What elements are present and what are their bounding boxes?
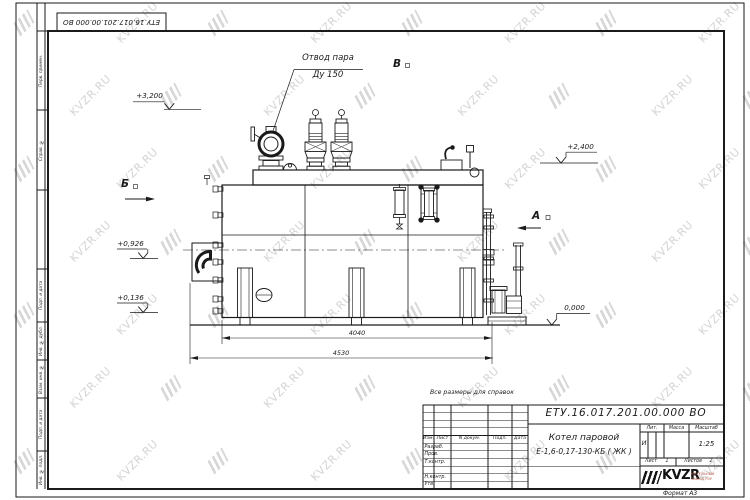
sheet-ref-mark-b xyxy=(134,185,138,189)
drawing-canvas xyxy=(0,0,750,500)
safety-valve-2 xyxy=(331,110,352,171)
steam-outlet-valve xyxy=(251,127,283,171)
left-nozzles xyxy=(205,176,224,315)
col-header-dokum: N докум. xyxy=(451,437,488,442)
scale-header: Масштаб xyxy=(689,426,724,431)
elevation-0926: +0,926 xyxy=(114,240,147,248)
row-label-prov: Пров. xyxy=(425,452,439,457)
side-label-vzam-inv: Взам. инв. № xyxy=(37,362,46,396)
view-direction-arrows xyxy=(125,64,550,231)
steam-outlet-callout-line1: Отвод пара xyxy=(292,54,364,63)
row-label-razrab: Разраб. xyxy=(425,445,444,450)
elevation-0136: +0,136 xyxy=(114,294,147,302)
elevation-2400: +2,400 xyxy=(564,143,597,151)
doc-number: ЕТУ.16.017.201.00.000 ВО xyxy=(528,408,724,419)
sheet-ref-mark-v xyxy=(406,64,410,68)
elevation-3200: +3,200 xyxy=(133,92,166,100)
drawing-sheet: KVZR.RUKVZR.RUKVZR.RUKVZR.RUKVZR.RUKVZR.… xyxy=(0,0,750,500)
water-level-gauges xyxy=(394,184,440,229)
kvzr-logo-sub1: КОТЕЛЬНЫЙ xyxy=(691,473,714,477)
col-header-data: Дата xyxy=(512,437,528,442)
side-label-podp-data-1: Подп. и дата xyxy=(37,271,46,320)
sheets-value: 2 xyxy=(706,459,716,464)
boiler-top-band xyxy=(253,170,483,185)
row-label-nkontr: Н.контр. xyxy=(425,475,446,480)
boiler-supports xyxy=(238,268,476,325)
sheet-label: Лист xyxy=(642,459,660,464)
lit-value: И xyxy=(640,440,648,447)
sheet-ref-mark-a xyxy=(546,216,550,220)
safety-valve-1 xyxy=(305,110,326,171)
boiler-elevation-view xyxy=(183,110,560,326)
view-marker-v: В xyxy=(393,59,401,70)
top-stamp-text: ЕТУ.16.017.201.00.000 ВО xyxy=(57,13,166,31)
side-label-inv-podl: Инв. № подл. xyxy=(37,453,46,487)
sheet-frame xyxy=(16,3,744,497)
burner xyxy=(192,243,222,281)
sheet-value: 1 xyxy=(662,459,672,464)
side-label-inv-dubl: Инв. № дубл. xyxy=(37,324,46,358)
lit-header: Лит. xyxy=(640,426,664,431)
pressure-gauge-assembly xyxy=(441,146,479,178)
col-header-podp: Подп. xyxy=(488,437,512,442)
format-note: Формат А3 xyxy=(663,491,697,497)
view-marker-a: А xyxy=(532,211,540,222)
row-label-utv: Утв. xyxy=(425,482,435,487)
product-name-line1: Котел паровой xyxy=(528,434,640,443)
mass-header: Масса xyxy=(664,426,689,431)
col-header-izm: Изм. xyxy=(423,437,434,442)
steam-outlet-callout-line2: Ду 150 xyxy=(292,71,364,80)
view-marker-b: Б xyxy=(121,179,129,190)
elevation-0000: 0,000 xyxy=(559,304,590,312)
side-label-perv-primen: Перв. примен. xyxy=(37,33,46,108)
dimension-4040: 4040 xyxy=(339,330,375,337)
side-label-sprav-no: Справ. № xyxy=(37,112,46,188)
reference-note: Все размеры для справок xyxy=(430,390,514,397)
dimension-4530: 4530 xyxy=(323,350,359,357)
side-label-podp-data-2: Подп. и дата xyxy=(37,400,46,449)
elevation-marks xyxy=(117,102,598,325)
kvzr-logo-sub2: ЗАВОД РЭУ xyxy=(691,478,712,482)
scale-value: 1:25 xyxy=(689,441,724,448)
col-header-list: Лист xyxy=(434,437,451,442)
product-name-line2: Е-1,6-0,17-130-КБ ( ЖК ) xyxy=(528,448,640,456)
sheets-label: Листов xyxy=(680,459,706,464)
row-label-tkontr: Т.контр. xyxy=(425,460,446,465)
